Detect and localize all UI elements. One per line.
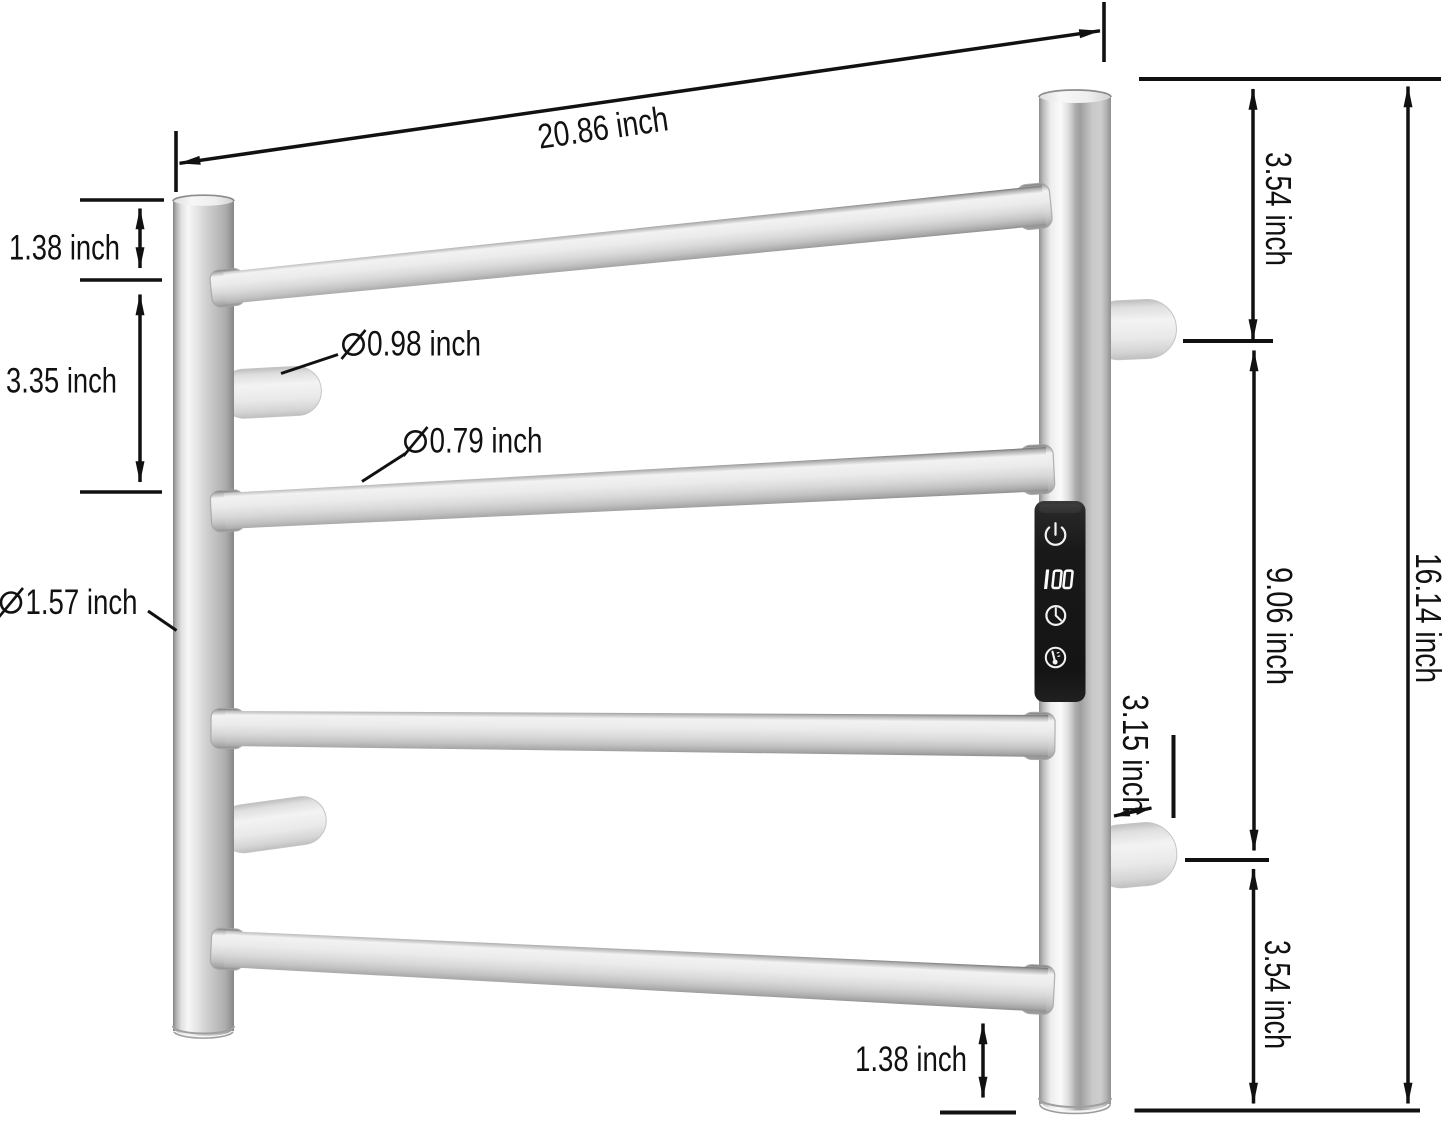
svg-text:3.15 inch: 3.15 inch — [1115, 695, 1156, 813]
svg-text:3.54 inch: 3.54 inch — [1257, 940, 1298, 1049]
svg-text:16.14 inch: 16.14 inch — [1408, 553, 1445, 683]
svg-text:3.35 inch: 3.35 inch — [6, 362, 117, 401]
svg-text:1.38 inch: 1.38 inch — [855, 1040, 967, 1079]
svg-text:3.54 inch: 3.54 inch — [1258, 152, 1299, 266]
svg-text:1.38 inch: 1.38 inch — [9, 229, 120, 268]
svg-text:0.79 inch: 0.79 inch — [430, 422, 543, 461]
svg-text:9.06 inch: 9.06 inch — [1259, 567, 1300, 685]
svg-text:0.98 inch: 0.98 inch — [367, 325, 481, 364]
svg-text:1.57 inch: 1.57 inch — [26, 583, 138, 622]
